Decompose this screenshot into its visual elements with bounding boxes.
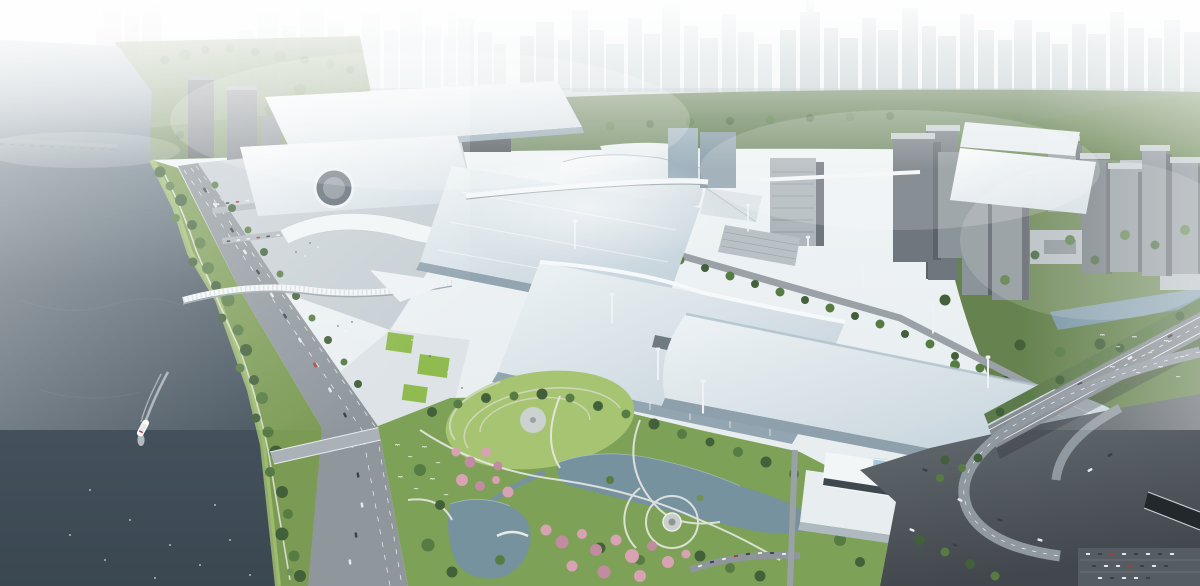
circular-courtyard (315, 169, 353, 207)
rendering-canvas (0, 0, 1200, 586)
parking-lot (1078, 548, 1200, 586)
aerial-rendering (0, 0, 1200, 586)
park-pavilion (663, 513, 681, 531)
